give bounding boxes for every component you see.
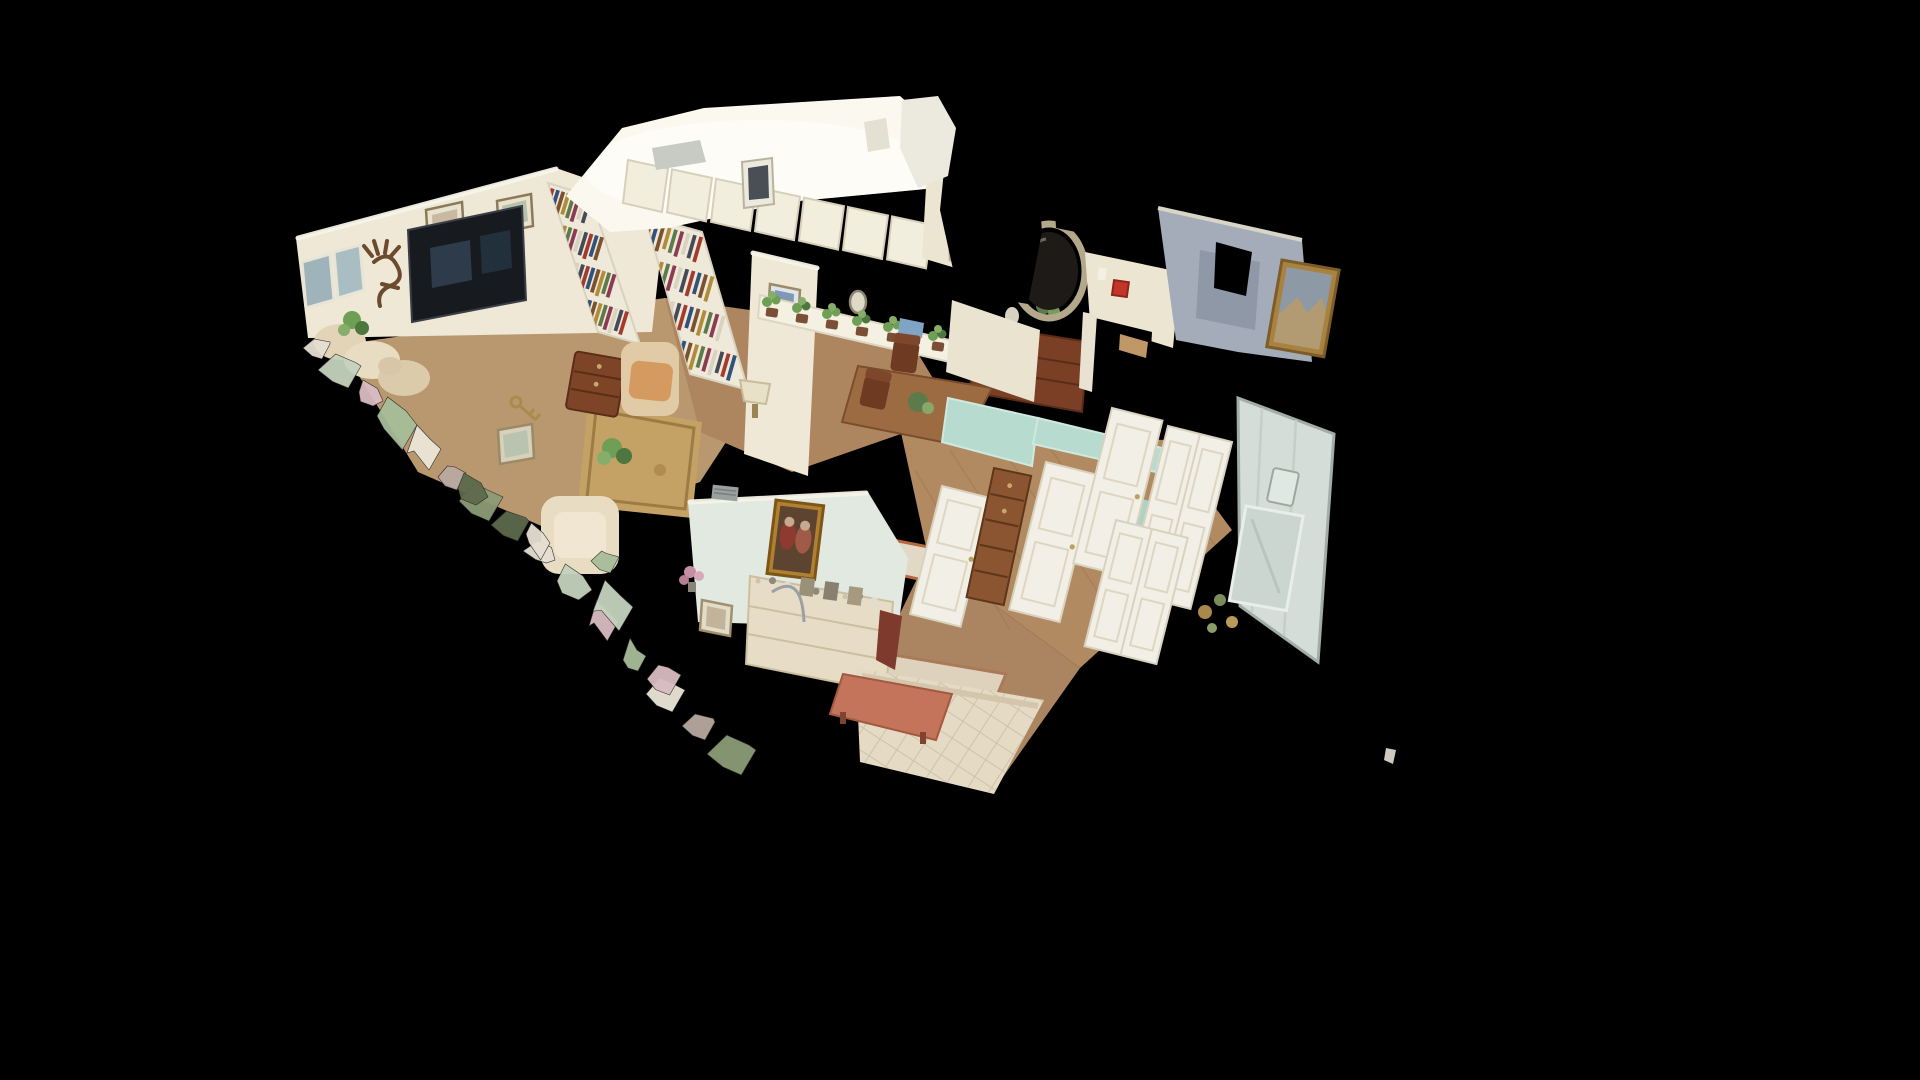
gray-wall-fragment [1158,208,1339,362]
air-vent [711,485,738,502]
plant-pot [765,307,778,318]
towel-rail [1267,468,1300,507]
plant-pot [825,319,838,330]
plant-pot [855,326,868,337]
plant-pot [795,313,808,324]
sofa-pillow [378,357,402,375]
plant-leaves [798,297,806,305]
trinket [769,577,776,584]
framed-sketch [742,158,774,208]
plant-leaves [828,303,836,311]
plant-leaves [768,291,776,299]
cabinet-door [843,207,888,259]
plant-leaves [934,325,942,333]
plant-leaves [889,316,897,324]
trinket [843,594,848,599]
torn-mesh-fragment [707,735,756,775]
cabinet-door [667,169,712,221]
dollhouse-model[interactable] [296,96,1396,794]
wood-dresser [566,351,627,417]
trinket [756,579,761,584]
dining-chair [890,332,921,373]
dark-doorway [1092,318,1152,402]
window [302,254,334,308]
plant-pot [931,341,944,352]
picture-frame-small [823,581,839,601]
oval-wall-clock [850,291,866,313]
picture-frame-small [799,577,815,597]
viewer-canvas [0,0,1920,1080]
torn-mesh-fragment [623,638,646,671]
window [334,245,364,298]
dollhouse-3d-viewport[interactable] [0,0,1920,1080]
gold-framed-portrait [767,500,824,579]
floating-ceiling-fragment [864,118,890,152]
plant-leaves [858,310,866,318]
cabinet-door [799,198,844,250]
armchair-orange [621,342,679,416]
floating-fragment-speck [1384,748,1396,764]
table-centerpiece [922,402,934,414]
trinket [870,597,879,606]
light-switch [1097,268,1107,281]
framed-picture [498,424,534,464]
picture-frame-small [847,586,863,606]
fire-alarm-box [1112,280,1129,297]
framed-picture [700,600,732,636]
rug-motif [654,464,666,476]
torn-mesh-fragment [682,714,715,740]
